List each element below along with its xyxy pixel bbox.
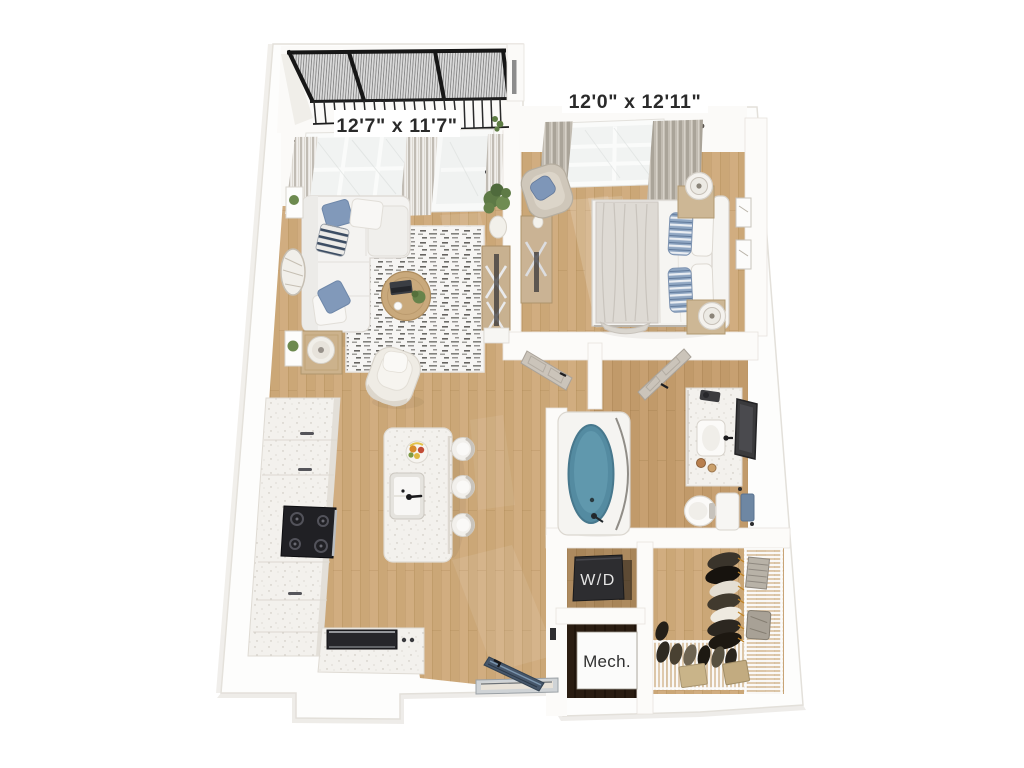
svg-text:12'7" x 11'7": 12'7" x 11'7"	[336, 115, 457, 137]
svg-text:12'0" x 12'11": 12'0" x 12'11"	[569, 91, 702, 113]
svg-text:Mech.: Mech.	[583, 652, 631, 671]
svg-text:W/D: W/D	[580, 572, 616, 589]
